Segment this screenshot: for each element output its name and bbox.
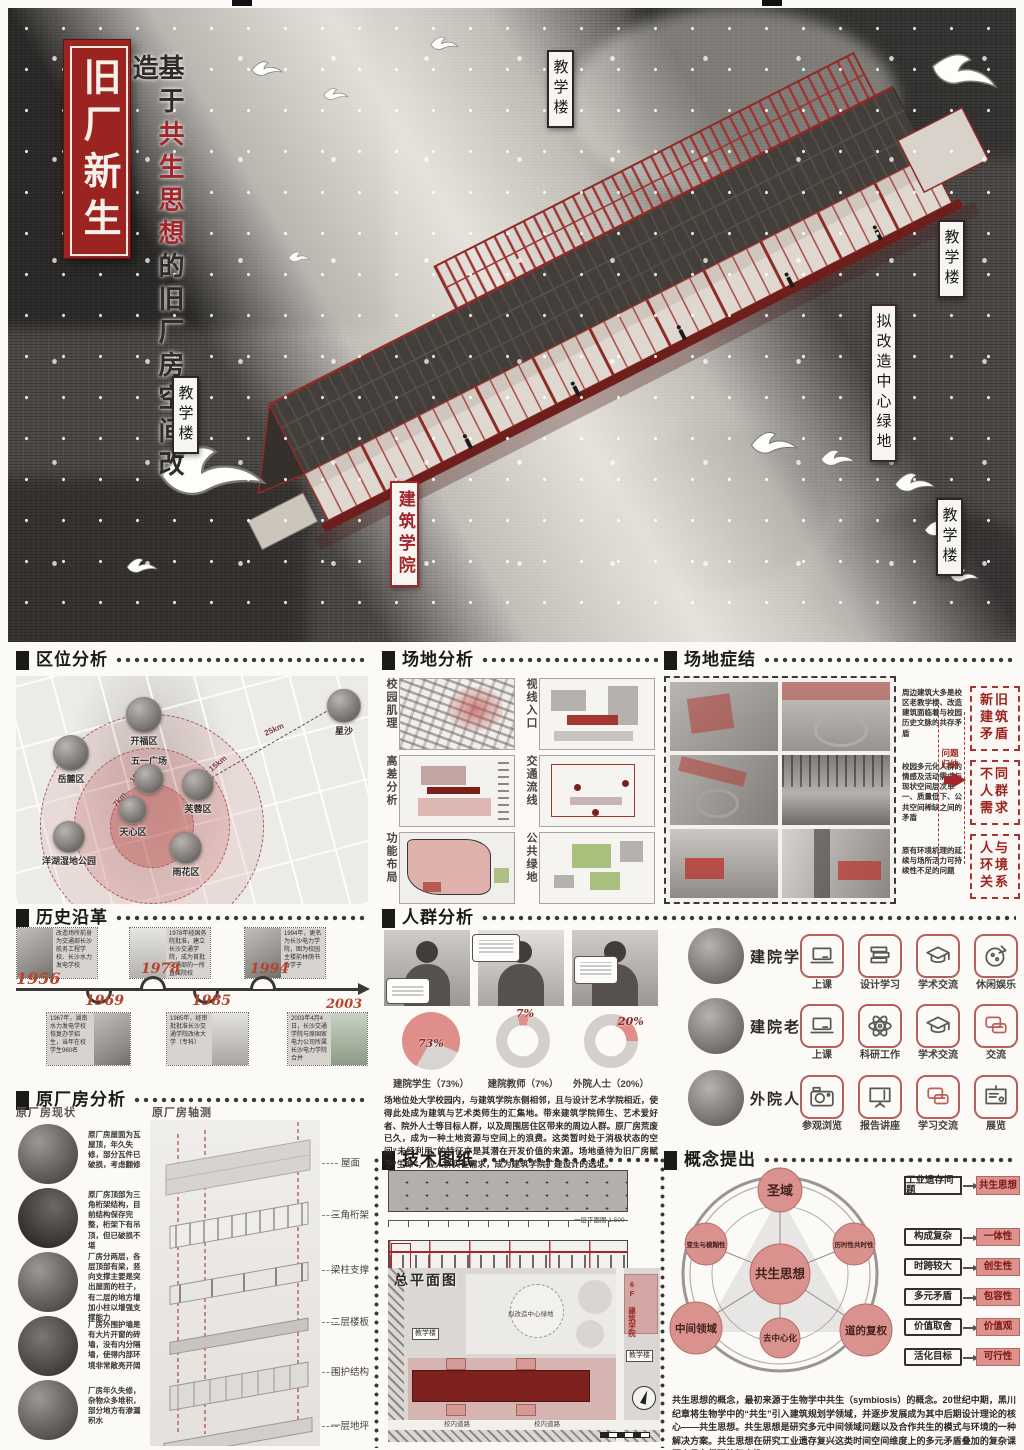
activity-label: 报告讲座 [852, 1122, 908, 1132]
pair-arrow [963, 1267, 975, 1269]
avatar-students [688, 928, 744, 984]
label-teaching-building-top: 教学楼 [547, 50, 574, 128]
pie-label: 建院学生（73%） [393, 1080, 469, 1090]
activity-label: 参观浏览 [794, 1122, 850, 1132]
oval-plaza [814, 713, 868, 747]
avatar-outsiders [688, 1070, 744, 1126]
thumb-label: 功能布局 [382, 832, 396, 904]
concept-paragraph: 共生思想的概念，最初来源于生物学中共生（symbiosis）的概念。20世纪中期… [672, 1394, 1016, 1450]
place-label: 岳麓区 [57, 775, 84, 784]
activity-box [800, 1004, 844, 1048]
axon-label: 二层楼板 [331, 1318, 369, 1328]
activity-box [974, 1075, 1018, 1119]
pair-to: 一体性 [976, 1228, 1020, 1246]
place-label: 天心区 [119, 828, 146, 837]
activity-label: 上课 [794, 981, 850, 991]
site-analysis-cell: 公共绿地 [522, 832, 655, 904]
avatar-teachers [688, 998, 744, 1054]
activity-box [974, 934, 1018, 978]
pie-percent: 7% [516, 1008, 534, 1019]
map-thumb-green-space [539, 832, 655, 904]
timeline-line [16, 988, 360, 991]
map-thumb-campus-texture [399, 678, 515, 750]
activity-label: 休闲娱乐 [968, 981, 1024, 991]
presentation-board-icon [867, 1084, 893, 1110]
flow-from-box: 工业遗存问题 [904, 1176, 962, 1195]
red-highlight [838, 861, 881, 880]
section-title: 场地症结 [684, 652, 756, 669]
conclusion-box: 不同人群需求 [970, 760, 1020, 825]
floor-plan-drawing [388, 1170, 628, 1212]
plan-caption: 一层平面图 1:500 [574, 1218, 625, 1225]
place-photo-tianxin [119, 796, 147, 824]
red-building [567, 715, 617, 725]
activity-box [800, 934, 844, 978]
concept-node-top: 圣域 [767, 1183, 793, 1199]
square-bullet-icon [382, 651, 395, 670]
section-title: 人群分析 [402, 910, 474, 927]
tree-trunk [814, 829, 829, 898]
label-green-space: 拟改造中心绿地 [870, 304, 897, 462]
concept-node-bottom-right: 道的复权 [845, 1324, 887, 1337]
road-hatch [498, 762, 509, 821]
pair-from: 价值取舍 [904, 1318, 962, 1336]
atom-icon [867, 1013, 893, 1039]
year-label: 1969 [85, 994, 124, 1008]
issue-photo [670, 829, 778, 898]
flow-to-box: 共生思想 [976, 1176, 1020, 1195]
north-needle [640, 1389, 650, 1404]
thumb-label: 交通流线 [522, 755, 536, 827]
label-teaching-building-far-right: 教学楼 [936, 498, 963, 576]
activity-label: 上课 [794, 1051, 850, 1061]
thumb-label: 视线入口 [522, 678, 536, 750]
activity-label: 展览 [968, 1122, 1024, 1132]
camera-icon [809, 1084, 835, 1110]
activity-label: 科研工作 [852, 1051, 908, 1061]
plaza-circle-3 [576, 1320, 604, 1348]
place-label: 星沙 [335, 727, 353, 736]
year-label: 1985 [192, 994, 231, 1008]
north-arrow-icon [632, 1386, 656, 1410]
dot-leader [763, 1156, 1016, 1164]
square-bullet-icon [16, 909, 29, 928]
place-photo-kaifu [126, 697, 162, 733]
section-header-site-issues: 场地症结 [664, 650, 1016, 670]
concept-diagram: 圣域 变生与模糊性 历时性共时性 共生思想 去中心化 中间领域 道的复权 [664, 1164, 896, 1392]
subtitle-prefix: 基于 [154, 54, 184, 120]
axonometric-panel [150, 1120, 320, 1446]
factory-note: 厂房外围护墙是有大片开窗的砖墙，没有内分隔墙，使得内部环境非常敞亮开阔 [88, 1320, 146, 1371]
place-photo-yuhua [170, 832, 202, 864]
pair-arrow [963, 1297, 975, 1299]
label-teaching-building-right: 教学楼 [938, 220, 965, 298]
circle-form [696, 789, 739, 819]
section-header-site-analysis: 场地分析 [382, 650, 658, 670]
square-bullet-icon [664, 651, 677, 670]
pair-arrow [963, 1237, 975, 1239]
history-text: 1985年，经审批批准长沙交通学院改收大学（专科） [167, 1013, 212, 1065]
donut-hole [507, 1025, 538, 1056]
activity-label: 交流 [968, 1051, 1024, 1061]
gray-block [551, 690, 585, 711]
dot-leader [115, 656, 368, 664]
history-card-1969: 1967年，湖南水力发电学校恢复办学招生，当年在校学生960名 [46, 1012, 131, 1066]
teaching-box-right: 教学楼 [626, 1350, 653, 1362]
college-label: 6F 建筑学院 [628, 1280, 636, 1337]
factory-note: 厂房年久失修，杂物众多堆积，部分地方有渗漏积水 [88, 1386, 146, 1427]
place-photo-wuyi [134, 764, 164, 794]
donut-hole [595, 1025, 626, 1056]
function-zone [407, 839, 491, 896]
concept-node-center: 共生思想 [755, 1266, 806, 1281]
pair-from: 活化目标 [904, 1348, 962, 1366]
activity-label: 学习交流 [910, 1122, 966, 1132]
factory-photo-structure [18, 1252, 78, 1312]
place-label: 洋湖湿地公园 [42, 857, 96, 866]
pie-teachers [496, 1014, 550, 1068]
red-patch [423, 882, 441, 892]
map-thumb-sight-entrance [539, 678, 655, 750]
conclusion-box: 人与环境关系 [970, 834, 1020, 899]
bracket-line [938, 700, 939, 866]
activity-box [800, 1075, 844, 1119]
factory-photo-wall [18, 1316, 78, 1376]
map-thumb-function-layout [399, 832, 515, 904]
pink-block [421, 766, 467, 786]
hero-rendering: 旧厂新生 基于共生思想的旧厂房空间改造 教学楼 教学楼 拟改造中心绿地 教学楼 … [8, 8, 1016, 642]
factory-note: 原厂房屋面为瓦屋顶，年久失修，部分瓦件已破损，考虑翻修 [88, 1130, 146, 1171]
scale-bar [600, 1432, 650, 1438]
speech-bubble [574, 956, 618, 984]
place-photo-yuelu [53, 735, 89, 771]
history-card-2003: 2003年4月4日，长沙交通学院与原国家电力公司所属长沙电力学院合并 [287, 1012, 368, 1066]
gray-block [554, 875, 575, 888]
dot-leader [133, 1096, 368, 1104]
poster-title: 旧厂新生 [70, 46, 128, 256]
sub-header-axon: 原厂房轴测 [152, 1108, 212, 1119]
factory-note: 原厂房顶部为三角桁架结构，目前结构保存完整，桁架下有吊顶，但已破损不堪 [88, 1190, 146, 1251]
pie-percent: 73% [418, 1038, 444, 1049]
master-plan-title: 总平面图 [394, 1274, 458, 1288]
thumb-label: 公共绿地 [522, 832, 536, 904]
activity-box [916, 1075, 960, 1119]
factory-photo-truss [18, 1188, 78, 1248]
activity-box [974, 1004, 1018, 1048]
site-analysis-cell: 交通流线 [522, 755, 655, 827]
arrow-label: 问题归纳 [941, 748, 959, 769]
green-block [572, 844, 611, 868]
laptop-icon [809, 943, 835, 969]
issue-photo [782, 682, 890, 751]
green-label: 拟改造中心绿地 [508, 1312, 554, 1319]
column-divider-dots [374, 1158, 379, 1448]
issue-photo [782, 755, 890, 824]
pie-percent: 20% [618, 1016, 644, 1027]
activity-box [858, 1075, 902, 1119]
sub-header-current: 原厂房现状 [16, 1108, 76, 1119]
square-bullet-icon [382, 909, 395, 928]
axon-label: 围护结构 [331, 1368, 369, 1378]
activity-box [916, 934, 960, 978]
red-highlight [678, 756, 747, 787]
registration-mark [762, 0, 782, 6]
pink-stub [516, 1404, 536, 1416]
dark-red-bar [427, 787, 479, 795]
place-label: 芙蓉区 [184, 805, 211, 814]
books-icon [867, 943, 893, 969]
activity-box [858, 934, 902, 978]
history-photo [94, 1013, 130, 1065]
speech-bubble [472, 934, 520, 962]
history-text: 1967年，湖南水力发电学校恢复办学招生，当年在校学生960名 [47, 1013, 94, 1065]
axon-label: 三角桁架 [331, 1211, 369, 1221]
green-block [590, 872, 620, 890]
factory-building [183, 20, 1008, 573]
pair-to: 可行性 [976, 1348, 1020, 1366]
issue-note: 原有环境机理的延续与场所活力可持续性不足的问题 [902, 846, 964, 876]
flow-arrow [963, 1185, 975, 1187]
activity-label: 设计学习 [852, 981, 908, 991]
dot-leader [481, 656, 658, 664]
dot-leader [763, 656, 1016, 664]
pair-to: 价值观 [976, 1318, 1020, 1336]
gray-block [620, 841, 643, 862]
site-analysis-cell: 视线入口 [522, 678, 655, 750]
section-header-location: 区位分析 [16, 650, 368, 670]
issue-photo [782, 829, 890, 898]
pair-arrow [963, 1327, 975, 1329]
dot-leader [481, 914, 1016, 922]
section-header-history: 历史沿革 [16, 908, 368, 928]
speech-bubble [386, 978, 430, 1004]
red-highlight [685, 858, 724, 879]
site-issue-photos [664, 676, 896, 904]
pink-stub [516, 1358, 536, 1370]
graduation-cap-icon [925, 1013, 951, 1039]
label-teaching-building-left: 教学楼 [172, 376, 199, 454]
red-building [412, 1370, 590, 1402]
activity-label: 学术交流 [910, 1051, 966, 1061]
hatch-strip [388, 1268, 404, 1442]
certificate-icon [983, 1084, 1009, 1110]
history-card-1985: 1985年，经审批批准长沙交通学院改收大学（专科） [166, 1012, 249, 1066]
axon-label: 屋面 [341, 1159, 360, 1169]
year-label: 1956 [16, 971, 61, 987]
history-text: 2003年4月4日，长沙交通学院与原国家电力公司所属长沙电力学院合并 [288, 1013, 331, 1065]
dot-leader [115, 914, 368, 922]
factory-photo-roof [18, 1124, 78, 1184]
laptop-icon [809, 1013, 835, 1039]
pair-to: 创生性 [976, 1258, 1020, 1276]
factory-photo-interior [18, 1380, 78, 1440]
year-label: 2003 [326, 998, 362, 1011]
poster-board: 旧厂新生 基于共生思想的旧厂房空间改造 教学楼 教学楼 拟改造中心绿地 教学楼 … [0, 0, 1024, 1450]
pie-label: 建院教师（7%） [488, 1080, 559, 1090]
leader-line [322, 1163, 338, 1164]
gray-block [554, 731, 634, 741]
pair-from: 多元矛盾 [904, 1288, 962, 1306]
pink-stub [446, 1358, 466, 1370]
crowd-paragraph: 场地位处大学校园内，与建筑学院东侧相邻，且与设计艺术学院相近，使得此处成为建筑与… [384, 1094, 658, 1171]
factory-note: 厂房分两层，各层顶部有梁，竖向支撑主要是突出屋面的柱子，有二层的地方增加小柱以增… [88, 1252, 146, 1323]
location-map: 7km 10km 15km 25km 开福区 五一广场 岳麓区 芙蓉区 天心区 … [16, 676, 368, 904]
pair-from: 构成复杂 [904, 1228, 962, 1246]
pizza-icon [983, 943, 1009, 969]
registration-mark [232, 0, 252, 6]
pair-to: 包容性 [976, 1288, 1020, 1306]
issue-note: 周边建筑大多是校区老教学楼、改造建筑面临着与校园历史文脉的共存矛盾 [902, 688, 964, 739]
activity-box [858, 1004, 902, 1048]
map-thumb-height-analysis [399, 755, 515, 827]
section-header-crowd: 人群分析 [382, 908, 1016, 928]
pair-from: 时跨较大 [904, 1258, 962, 1276]
pie-label: 外院人士（20%） [573, 1080, 649, 1090]
history-photo [212, 1013, 248, 1065]
graduation-cap-icon [925, 943, 951, 969]
master-plan: 拟改造中心绿地 教学楼 6F 建筑学院 教学楼 校内道路 校内道路 [388, 1268, 660, 1442]
concept-node-bottom: 去中心化 [763, 1333, 798, 1344]
pink-blob [448, 687, 503, 730]
route-node [622, 780, 629, 787]
road-strip-v [616, 1268, 624, 1442]
concept-node-right: 历时性共时性 [835, 1240, 875, 1249]
pair-arrow [963, 1357, 975, 1359]
section-title: 原厂房分析 [36, 1092, 126, 1109]
place-label: 开福区 [130, 737, 157, 746]
road-label: 校内道路 [534, 1422, 560, 1429]
year-label: 1978 [141, 962, 180, 976]
year-label: 1994 [250, 962, 289, 976]
chat-icon [983, 1013, 1009, 1039]
place-label: 雨花区 [172, 868, 199, 877]
timeline-arrow-icon [358, 983, 370, 995]
thumb-label: 校园肌理 [382, 678, 396, 750]
map-thumb-traffic [539, 755, 655, 827]
road-label: 校内道路 [444, 1422, 470, 1429]
activity-label: 学术交流 [910, 981, 966, 991]
section-title: 区位分析 [36, 652, 108, 669]
chat-icon [925, 1084, 951, 1110]
pink-zone [418, 798, 491, 816]
issue-photo [670, 755, 778, 824]
section-title: 历史沿革 [36, 910, 108, 927]
pink-stub [446, 1404, 466, 1416]
bracket-line-2 [964, 712, 965, 864]
site-analysis-cell: 校园肌理 [382, 678, 515, 750]
teaching-box-left: 教学楼 [412, 1328, 439, 1340]
activity-box [916, 1004, 960, 1048]
roof-beams [782, 755, 890, 786]
place-photo-yanghu [53, 821, 85, 853]
concept-node-left: 变生与模糊性 [687, 1240, 727, 1249]
label-architecture-college: 建筑学院 [390, 481, 419, 587]
history-photo [331, 1013, 367, 1065]
issue-photo [670, 682, 778, 751]
site-analysis-cell: 功能布局 [382, 832, 515, 904]
section-title: 场地分析 [402, 652, 474, 669]
concept-node-bottom-left: 中间领域 [675, 1322, 717, 1335]
poster-title-box: 旧厂新生 [64, 40, 130, 258]
subtitle-highlight: 共生思想 [154, 120, 184, 252]
axon-label: 梁柱支撑 [331, 1266, 369, 1276]
red-highlight [687, 693, 735, 733]
place-photo-furong [182, 769, 214, 801]
green-patch [494, 868, 510, 883]
axonometric-drawing [150, 1120, 320, 1446]
site-analysis-cell: 高差分析 [382, 755, 515, 827]
conclusion-box: 新旧建筑矛盾 [970, 686, 1020, 751]
gray-block [570, 797, 622, 805]
red-highlight [782, 682, 890, 700]
thumb-label: 高差分析 [382, 755, 396, 827]
plaza-circle-2 [578, 1280, 612, 1314]
axon-label: 一层地坪 [331, 1422, 369, 1432]
square-bullet-icon [16, 651, 29, 670]
place-photo-xingsha [327, 689, 361, 723]
